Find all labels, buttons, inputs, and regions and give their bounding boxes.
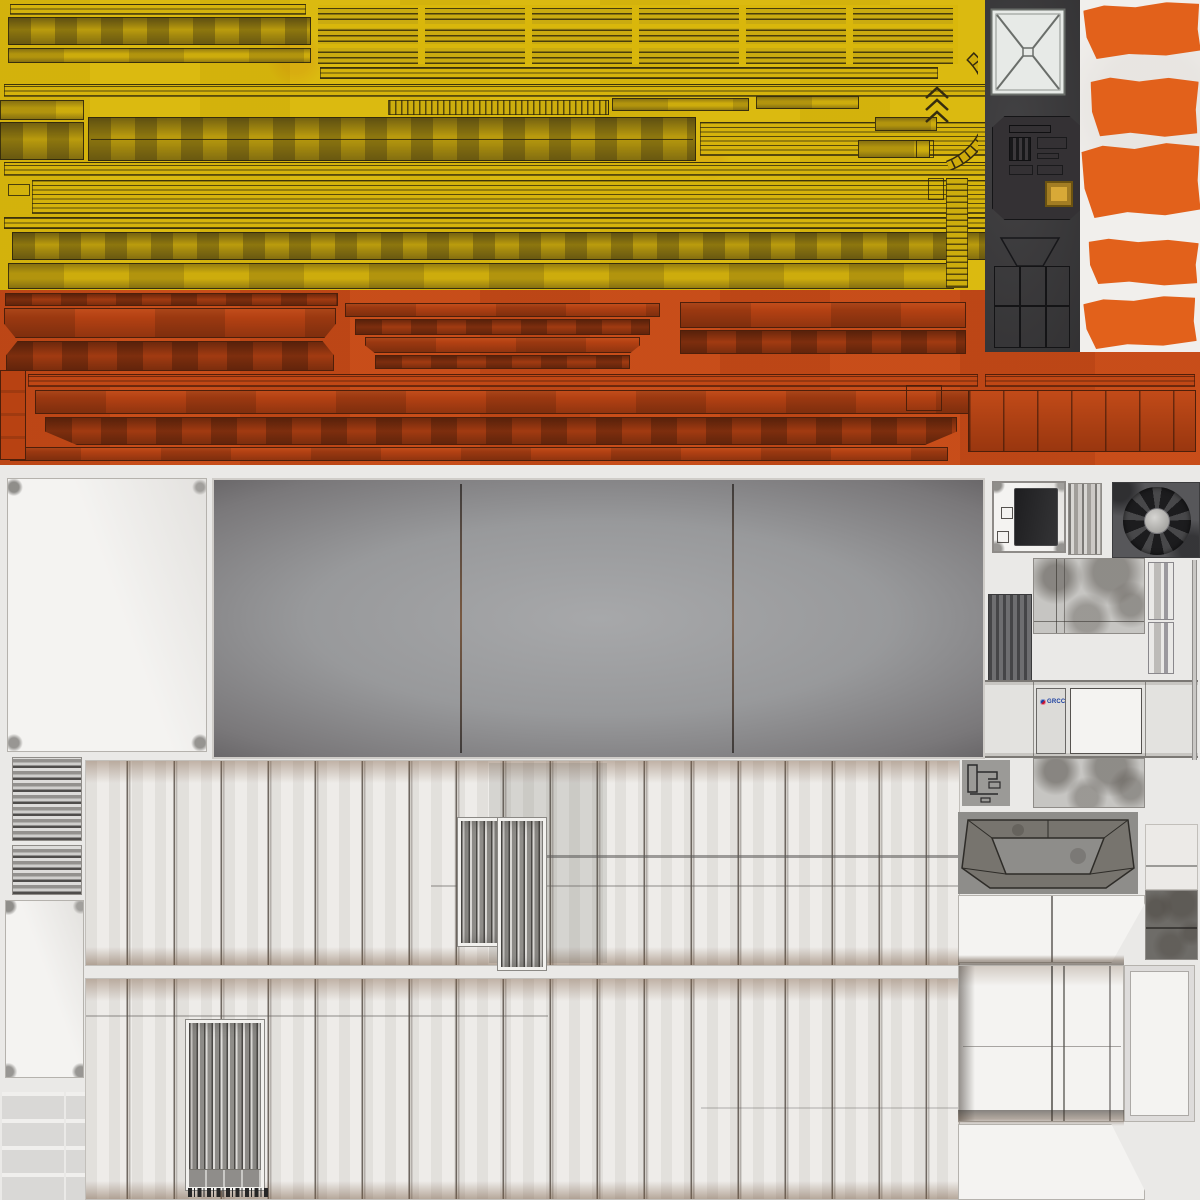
grcc-logo-icon: GRCC: [1040, 699, 1065, 705]
yellow-plank: [0, 122, 84, 160]
roof-seam: [732, 484, 734, 753]
door-glyph-row: [188, 1188, 268, 1197]
orange-lines-strip: [985, 374, 1195, 387]
flap-seam: [1051, 896, 1053, 962]
striped-block: [12, 845, 82, 895]
cell-grid-left: [2, 1092, 64, 1200]
panel-box: [1037, 153, 1059, 159]
yellow-plank: [0, 100, 84, 120]
control-panel: [992, 116, 1082, 220]
texture-atlas-sheet: GRCC: [0, 0, 1200, 1200]
orange-beam: [680, 330, 966, 354]
flap-seam: [1034, 621, 1144, 622]
curved-rail-icon: [940, 52, 978, 170]
white-concrete-panel: [7, 478, 207, 752]
cabinet-switch: [1001, 507, 1013, 519]
body-seam: [1063, 966, 1065, 1121]
hazard-stripe: [1089, 75, 1199, 140]
panel-box: [1009, 165, 1033, 175]
cabinet-switch: [997, 531, 1009, 543]
hazard-stripe: [1083, 294, 1197, 350]
cab-box-unwrap: [994, 266, 1070, 348]
orange-bar: [5, 293, 338, 306]
hazard-stripe: [1083, 0, 1200, 60]
wall-rail-line: [501, 855, 959, 858]
panel-box: [1037, 165, 1063, 175]
yellow-vertical-slats: [946, 178, 968, 288]
hazard-stripe: [1081, 141, 1200, 219]
orange-beam: [6, 341, 334, 371]
body-seam: [1109, 966, 1111, 1121]
logo-globe-icon: [1040, 699, 1046, 705]
orange-beam-block-right: [985, 352, 1200, 465]
slat-grid: [318, 5, 958, 64]
bracket-diagram: [962, 760, 1010, 806]
fan-unit: [1112, 482, 1200, 558]
x-brace-skylight-icon: [990, 8, 1066, 96]
cabinet-window: [1014, 488, 1058, 546]
orange-beam: [4, 308, 336, 338]
orange-beam-wide: [45, 417, 957, 445]
cab-box-seam: [1045, 267, 1047, 347]
orange-vertical-plank-box: [968, 390, 1196, 452]
box-window: [1070, 688, 1142, 754]
hairline-strip: [1192, 560, 1197, 760]
thin-bar-pair: [1148, 622, 1174, 674]
yellow-square-outline: [928, 178, 944, 200]
grcc-door: GRCC: [1036, 688, 1066, 754]
orange-step-beam: [375, 355, 630, 369]
yellow-plank: [756, 96, 859, 109]
cab-box-seam: [1019, 267, 1021, 347]
striped-block: [12, 757, 82, 841]
yellow-plank-wide: [88, 117, 696, 161]
dark-slat-block: [988, 594, 1032, 682]
orange-bracket: [906, 385, 942, 411]
body-seam: [1051, 966, 1053, 1121]
tunnel-trapezoid: [958, 812, 1138, 894]
yellow-plank-block: [0, 0, 985, 290]
logo-text: GRCC: [1047, 699, 1065, 705]
roof-panel: [212, 478, 985, 759]
orange-step-beam: [365, 337, 640, 353]
hazard-stripe-column: [1080, 0, 1200, 352]
thin-bar-pair: [1148, 562, 1174, 620]
box-unwrap-middle-band: GRCC: [985, 680, 1198, 758]
hazard-stripe: [1087, 236, 1199, 288]
box-unwrap-bottom-flap: [1033, 758, 1145, 808]
yellow-lines-strip: [320, 67, 938, 79]
cabinet-panel: [992, 481, 1066, 553]
cab-panel: [985, 0, 1080, 352]
orange-beam-wide: [35, 390, 978, 414]
gold-button-icon: [1045, 181, 1073, 207]
band-seam: [1145, 682, 1146, 756]
orange-beam-block: [0, 290, 985, 465]
wall-rail-line: [701, 1107, 961, 1109]
fan-hub: [1144, 508, 1170, 534]
funnel-outline: [999, 236, 1061, 268]
yellow-square-outline: [916, 140, 934, 158]
right-wall-strip: [1145, 824, 1198, 890]
roller-door: [186, 1020, 264, 1190]
orange-step-beam: [355, 319, 650, 335]
yellow-slat-strip: [388, 100, 609, 115]
orange-beam: [680, 302, 966, 328]
yellow-tab: [8, 184, 30, 196]
corrugated-door: [458, 818, 500, 946]
wall-rail-line: [86, 1015, 548, 1017]
box-unwrap-top-flap: [1033, 558, 1145, 634]
yellow-plank: [8, 17, 311, 45]
wall-rail-line: [1146, 865, 1197, 867]
panel-box: [1037, 137, 1067, 149]
large-box-top-flap: [958, 895, 1145, 963]
orange-lines-strip: [28, 374, 978, 387]
yellow-plank: [8, 48, 311, 63]
large-box-right-flap: [1124, 965, 1195, 1122]
white-concrete-panel-small: [5, 900, 84, 1078]
corrugated-door-tall: [498, 818, 546, 970]
yellow-plank-wide: [8, 263, 954, 289]
roller-door-footer: [189, 1169, 261, 1187]
body-line: [963, 1046, 1121, 1047]
band-seam: [1033, 682, 1034, 756]
dark-strip-block: [1145, 890, 1198, 960]
panel-readout: [1009, 125, 1051, 133]
yellow-lines-strip: [10, 4, 306, 15]
strip-seam: [1146, 927, 1197, 929]
large-box-bottom-flap: [958, 1124, 1145, 1200]
cab-box-seam: [995, 305, 1069, 307]
yellow-plank: [612, 98, 749, 111]
orange-bar: [10, 447, 948, 461]
vertical-striped-strips: [1068, 483, 1102, 555]
large-box-body: [958, 965, 1124, 1122]
grime-band: [958, 1110, 1124, 1126]
orange-edge-blocks: [0, 370, 26, 460]
roof-seam: [460, 484, 462, 753]
panel-slats: [1009, 137, 1031, 161]
orange-step-beam: [345, 303, 660, 317]
